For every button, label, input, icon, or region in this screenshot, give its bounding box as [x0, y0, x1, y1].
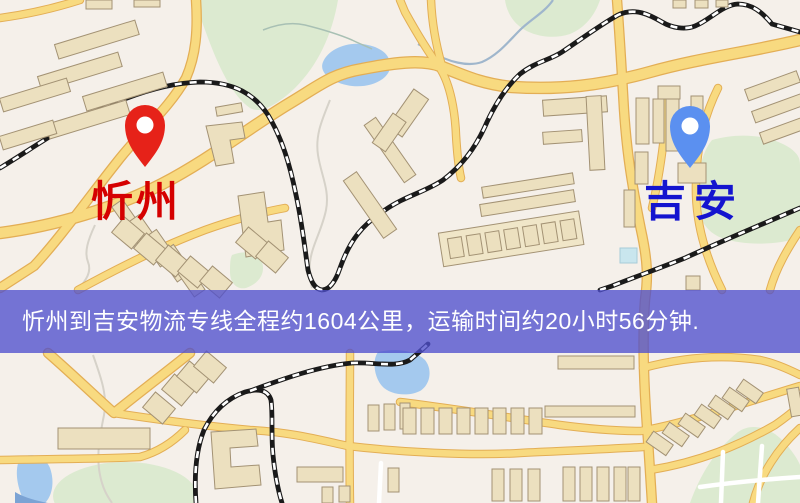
- origin-label: 忻州: [91, 179, 181, 226]
- pool-right: [620, 248, 637, 263]
- map-view: 忻州 吉安 忻州到吉安物流专线全程约1604公里，运输时间约20小时56分钟.: [0, 0, 800, 503]
- origin-marker-icon[interactable]: [125, 105, 165, 167]
- route-info-banner: 忻州到吉安物流专线全程约1604公里，运输时间约20小时56分钟.: [0, 290, 800, 353]
- pond-center: [375, 350, 430, 394]
- destination-label: 吉安: [644, 179, 744, 226]
- route-info-text: 忻州到吉安物流专线全程约1604公里，运输时间约20小时56分钟.: [22, 308, 699, 334]
- origin-pin-shape: [125, 105, 165, 167]
- building-footprints: [0, 0, 800, 503]
- map-canvas[interactable]: 忻州 吉安: [0, 0, 800, 503]
- park-bottom-left: [53, 462, 197, 503]
